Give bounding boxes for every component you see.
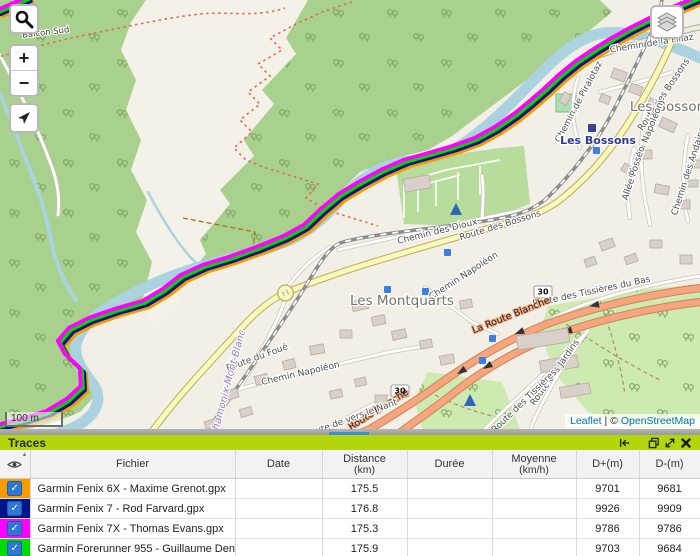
copyright-symbol: ©: [610, 415, 618, 427]
locate-button[interactable]: [9, 103, 39, 133]
trace-color-cell: ✓: [0, 519, 30, 539]
date-cell: [235, 519, 322, 539]
elevation-loss-cell: 9681: [639, 479, 700, 499]
map-label: 30: [537, 288, 549, 297]
average-cell: [492, 519, 576, 539]
elevation-loss-cell: 9684: [639, 539, 700, 556]
duration-cell: [407, 519, 492, 539]
duration-cell: [407, 539, 492, 556]
elevation-loss-cell: 9786: [639, 519, 700, 539]
locate-arrow-icon: [16, 110, 32, 126]
column-header-fichier[interactable]: Fichier: [30, 450, 235, 479]
trace-color-cell: ✓: [0, 539, 30, 556]
duration-cell: [407, 479, 492, 499]
elevation-loss-cell: 9909: [639, 499, 700, 519]
date-cell: [235, 499, 322, 519]
collapse-panel-button[interactable]: [616, 435, 632, 450]
average-cell: [492, 499, 576, 519]
close-icon: [680, 437, 692, 449]
map-attribution: Leaflet | © OpenStreetMap: [565, 414, 700, 429]
map-tiles: Balcon SudChemin de la FiliazRoute des B…: [0, 0, 700, 429]
table-row[interactable]: ✓Garmin Fenix 6X - Maxime Grenot.gpx175.…: [0, 479, 700, 499]
zoom-in-button[interactable]: +: [11, 46, 37, 71]
map-label: Les Montquarts: [350, 293, 454, 309]
window-restore-icon: [648, 437, 660, 449]
visibility-checkbox[interactable]: ✓: [7, 481, 22, 496]
panel-header: Traces: [0, 435, 700, 450]
table-row[interactable]: ✓Garmin Fenix 7 - Rod Farvard.gpx176.899…: [0, 499, 700, 519]
visibility-checkbox[interactable]: ✓: [7, 541, 22, 556]
search-button[interactable]: [9, 4, 39, 34]
leaflet-link[interactable]: Leaflet: [570, 415, 602, 427]
zoom-out-button[interactable]: −: [11, 71, 37, 95]
train-station-icon: [588, 124, 596, 132]
zoom-control: + −: [9, 44, 39, 97]
trace-color-cell: ✓: [0, 479, 30, 499]
trace-color-cell: ✓: [0, 499, 30, 519]
layers-button[interactable]: [650, 5, 684, 39]
date-cell: [235, 479, 322, 499]
gpx-viewer-app: Balcon SudChemin de la FiliazRoute des B…: [0, 0, 700, 556]
collapse-left-icon: [618, 437, 631, 449]
file-name-cell: Garmin Fenix 7 - Rod Farvard.gpx: [30, 499, 235, 519]
file-name-cell: Garmin Fenix 6X - Maxime Grenot.gpx: [30, 479, 235, 499]
expand-panel-button[interactable]: [662, 435, 678, 450]
column-header-d-m-[interactable]: D+(m): [576, 450, 639, 479]
column-header-date[interactable]: Date: [235, 450, 322, 479]
table-header-row: ▲ FichierDateDistance(km)DuréeMoyenne(km…: [0, 450, 700, 479]
sort-arrow-icon: ▲: [22, 452, 28, 458]
scale-bar: 100 m: [5, 412, 63, 427]
traces-table: ▲ FichierDateDistance(km)DuréeMoyenne(km…: [0, 450, 700, 556]
panel-title: Traces: [0, 436, 46, 450]
search-icon: [14, 9, 34, 29]
restore-panel-button[interactable]: [646, 435, 662, 450]
visibility-checkbox[interactable]: ✓: [7, 501, 22, 516]
map-canvas[interactable]: Balcon SudChemin de la FiliazRoute des B…: [0, 0, 700, 429]
average-cell: [492, 479, 576, 499]
map-label: 30: [394, 387, 406, 396]
map-label: Les Bossons: [560, 134, 636, 147]
column-header-d-m-[interactable]: D-(m): [639, 450, 700, 479]
elevation-gain-cell: 9703: [576, 539, 639, 556]
elevation-gain-cell: 9926: [576, 499, 639, 519]
file-name-cell: Garmin Fenix 7X - Thomas Evans.gpx: [30, 519, 235, 539]
visibility-column-header[interactable]: ▲: [0, 450, 30, 479]
elevation-gain-cell: 9701: [576, 479, 639, 499]
attribution-separator: |: [605, 415, 608, 427]
average-cell: [492, 539, 576, 556]
distance-cell: 176.8: [322, 499, 407, 519]
openstreetmap-link[interactable]: OpenStreetMap: [621, 415, 695, 427]
table-row[interactable]: ✓Garmin Fenix 7X - Thomas Evans.gpx175.3…: [0, 519, 700, 539]
column-header-dur-e[interactable]: Durée: [407, 450, 492, 479]
duration-cell: [407, 499, 492, 519]
distance-cell: 175.3: [322, 519, 407, 539]
traces-panel: Traces: [0, 429, 700, 556]
elevation-gain-cell: 9786: [576, 519, 639, 539]
date-cell: [235, 539, 322, 556]
table-row[interactable]: ✓Garmin Forerunner 955 - Guillaume Denef…: [0, 539, 700, 556]
layers-icon: [656, 12, 678, 32]
close-panel-button[interactable]: [678, 435, 694, 450]
expand-icon: [664, 437, 676, 449]
column-header-moyenne[interactable]: Moyenne(km/h): [492, 450, 576, 479]
visibility-checkbox[interactable]: ✓: [7, 521, 22, 536]
distance-cell: 175.9: [322, 539, 407, 556]
column-header-distance[interactable]: Distance(km): [322, 450, 407, 479]
distance-cell: 175.5: [322, 479, 407, 499]
file-name-cell: Garmin Forerunner 955 - Guillaume Deneff: [30, 539, 235, 556]
eye-icon: [7, 459, 22, 470]
